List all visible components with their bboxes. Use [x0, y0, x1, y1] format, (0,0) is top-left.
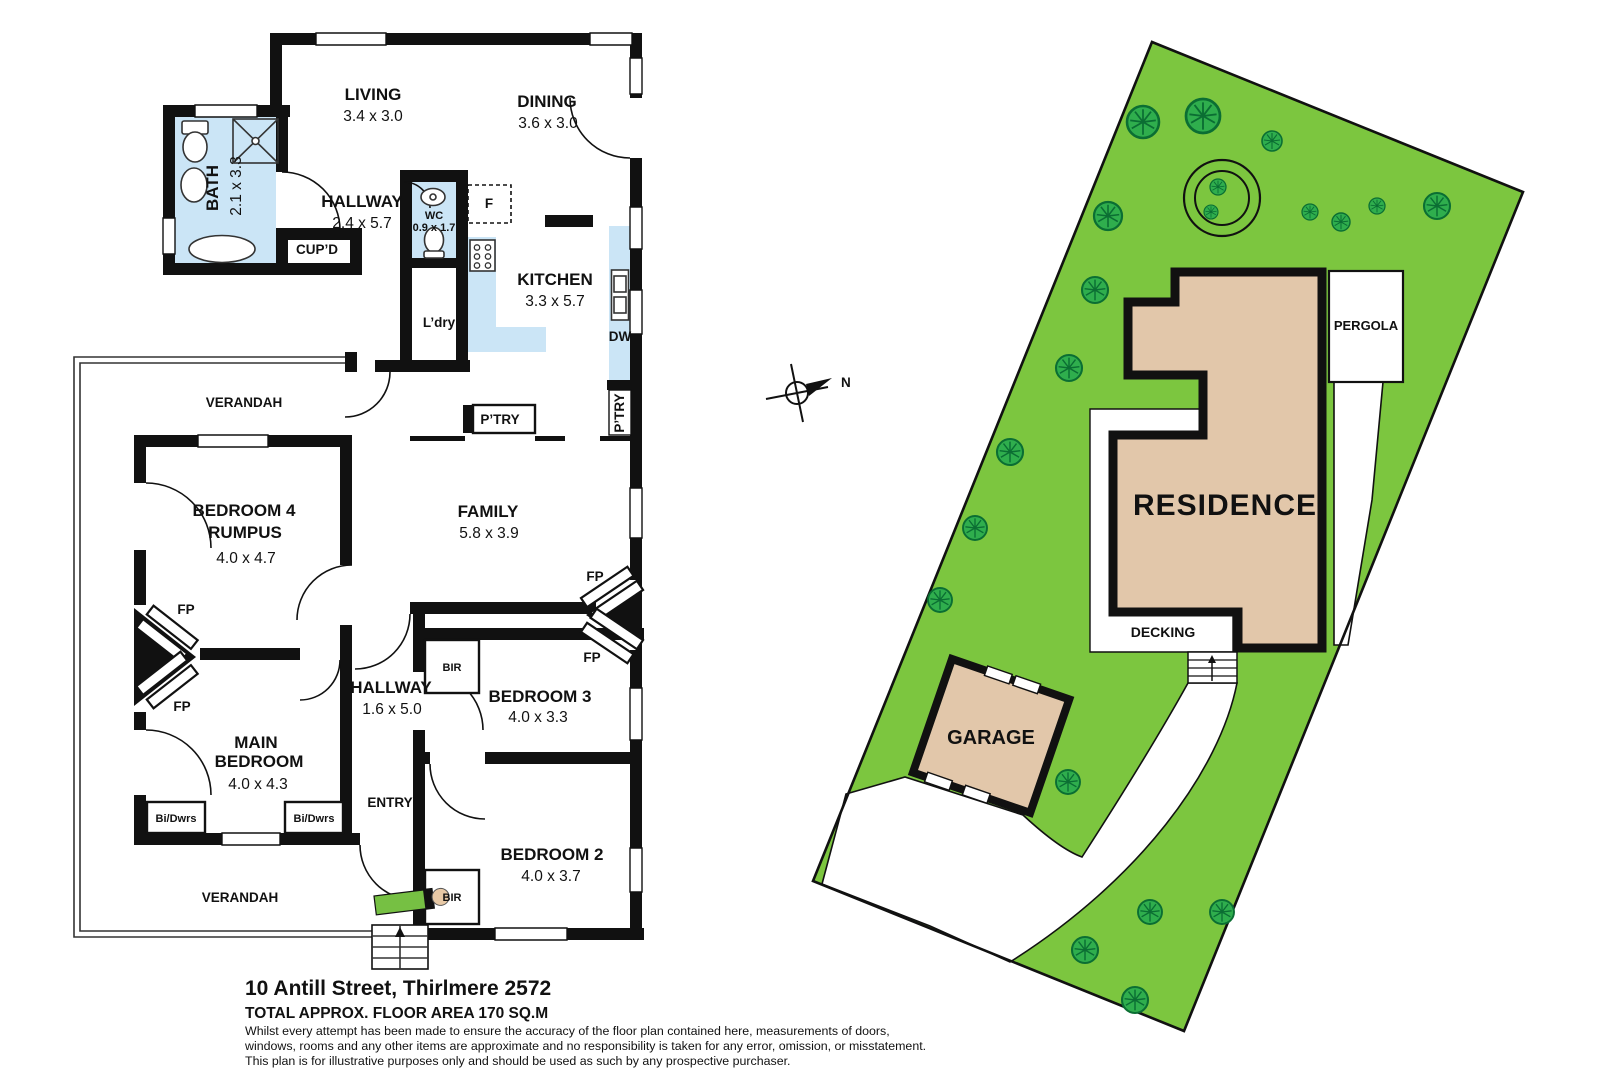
residence-label: RESIDENCE	[1133, 489, 1317, 522]
room-label-rumpus: RUMPUS	[208, 523, 282, 542]
disclaimer-line-1: Whilst every attempt has been made to en…	[245, 1024, 890, 1038]
label-fp-east-upper: FP	[586, 569, 603, 584]
label-pantry-column: P’TRY	[612, 393, 627, 432]
label-fp-west-upper: FP	[177, 602, 194, 617]
footer: 10 Antill Street, Thirlmere 2572 TOTAL A…	[244, 977, 926, 1068]
wc-basin-drain	[430, 194, 436, 200]
label-dishwasher: DW	[609, 329, 632, 344]
tree-icon	[1424, 193, 1450, 219]
cooktop	[470, 240, 495, 271]
label-bidwrs-east: Bi/Dwrs	[294, 813, 335, 825]
room-label-living: LIVING	[345, 85, 402, 104]
label-verandah-top: VERANDAH	[206, 395, 283, 410]
room-label-kitchen: KITCHEN	[517, 270, 593, 289]
label-entry: ENTRY	[367, 795, 412, 810]
room-dims-main: 4.0 x 4.3	[228, 776, 287, 793]
room-dims-bedroom4: 4.0 x 4.7	[216, 550, 275, 567]
room-label-bedroom4: BEDROOM 4	[193, 501, 297, 520]
room-label-main-bedroom: BEDROOM	[215, 752, 304, 771]
label-fridge: F	[485, 196, 493, 211]
room-dims-bath: 2.1 x 3.3	[228, 156, 245, 215]
room-dims-hallway-mid: 1.6 x 5.0	[362, 701, 422, 718]
garage-label: GARAGE	[947, 727, 1035, 749]
room-dims-wc: 0.9 x 1.7	[413, 222, 456, 234]
toilet-bowl	[183, 132, 207, 162]
room-dims-bedroom3: 4.0 x 3.3	[508, 709, 567, 726]
north-label: N	[841, 375, 851, 390]
tree-icon	[997, 439, 1023, 465]
label-fp-west-lower: FP	[173, 699, 190, 714]
floorplan-drawing: LIVING 3.4 x 3.0 DINING 3.6 x 3.0 BATH 2…	[0, 0, 1600, 1088]
tree-icon	[1127, 106, 1159, 138]
label-pantry: P’TRY	[480, 412, 519, 427]
room-dims-living: 3.4 x 3.0	[343, 108, 403, 125]
decking-label: DECKING	[1131, 624, 1196, 640]
room-dims-dining: 3.6 x 3.0	[518, 115, 578, 132]
wc-toilet-seat	[424, 251, 444, 258]
room-label-dining: DINING	[517, 92, 577, 111]
disclaimer-line-3: This plan is for illustrative purposes o…	[245, 1054, 791, 1068]
floorplan-page: LIVING 3.4 x 3.0 DINING 3.6 x 3.0 BATH 2…	[0, 0, 1600, 1088]
label-fp-east-lower: FP	[583, 650, 600, 665]
room-dims-family: 5.8 x 3.9	[459, 525, 518, 542]
floor-area-line: TOTAL APPROX. FLOOR AREA 170 SQ.M	[245, 1005, 548, 1022]
label-cupd: CUP’D	[296, 242, 338, 257]
tree-icon	[1210, 900, 1234, 924]
label-bidwrs-west: Bi/Dwrs	[156, 813, 197, 825]
decking-stairs	[1188, 652, 1237, 683]
compass-cross	[766, 364, 828, 422]
compass: N	[766, 364, 851, 422]
tree-icon	[963, 516, 987, 540]
room-label-family: FAMILY	[458, 502, 519, 521]
room-label-bath: BATH	[203, 165, 222, 211]
tree-icon	[1138, 900, 1162, 924]
label-verandah-bottom: VERANDAH	[202, 890, 279, 905]
room-label-main: MAIN	[234, 733, 277, 752]
pergola-label: PERGOLA	[1334, 318, 1399, 333]
tree-icon	[1122, 987, 1148, 1013]
tree-icon	[1186, 99, 1220, 133]
address-line: 10 Antill Street, Thirlmere 2572	[245, 977, 551, 1000]
tree-icon	[1302, 204, 1318, 220]
bathtub	[189, 236, 255, 263]
tree-icon	[1056, 770, 1080, 794]
room-label-wc: WC	[425, 210, 443, 222]
tree-icon	[1072, 937, 1098, 963]
room-label-hallway-top: HALLWAY	[321, 192, 403, 211]
tree-icon	[1094, 202, 1122, 230]
floor-plan: LIVING 3.4 x 3.0 DINING 3.6 x 3.0 BATH 2…	[74, 33, 644, 969]
tree-icon	[1082, 277, 1108, 303]
tree-icon	[1204, 205, 1218, 219]
tree-icon	[1332, 213, 1350, 231]
room-label-bedroom2: BEDROOM 2	[501, 845, 604, 864]
kitchen-bench-return	[496, 327, 546, 352]
room-label-bedroom3: BEDROOM 3	[489, 687, 592, 706]
entry-stairs	[372, 925, 428, 969]
label-bir-top: BIR	[443, 662, 462, 674]
label-laundry: L’dry	[423, 315, 456, 330]
tree-icon	[1210, 179, 1226, 195]
room-label-hallway-mid: HALLWAY	[350, 678, 432, 697]
tree-icon	[1262, 131, 1282, 151]
room-dims-bedroom2: 4.0 x 3.7	[521, 868, 580, 885]
residence-outline	[1113, 272, 1322, 648]
site-plan: RESIDENCE GARAGE PERGOLA DECKING N	[766, 42, 1523, 1031]
tree-icon	[1369, 198, 1385, 214]
label-bir-bottom: BIR	[443, 892, 462, 904]
north-arrow-icon	[806, 378, 832, 396]
shower-drain	[252, 138, 259, 145]
room-dims-hallway-top: 2.4 x 5.7	[332, 215, 391, 232]
tree-icon	[1056, 355, 1082, 381]
room-dims-kitchen: 3.3 x 5.7	[525, 293, 584, 310]
disclaimer-line-2: windows, rooms and any other items are a…	[244, 1039, 926, 1053]
tree-icon	[928, 588, 952, 612]
